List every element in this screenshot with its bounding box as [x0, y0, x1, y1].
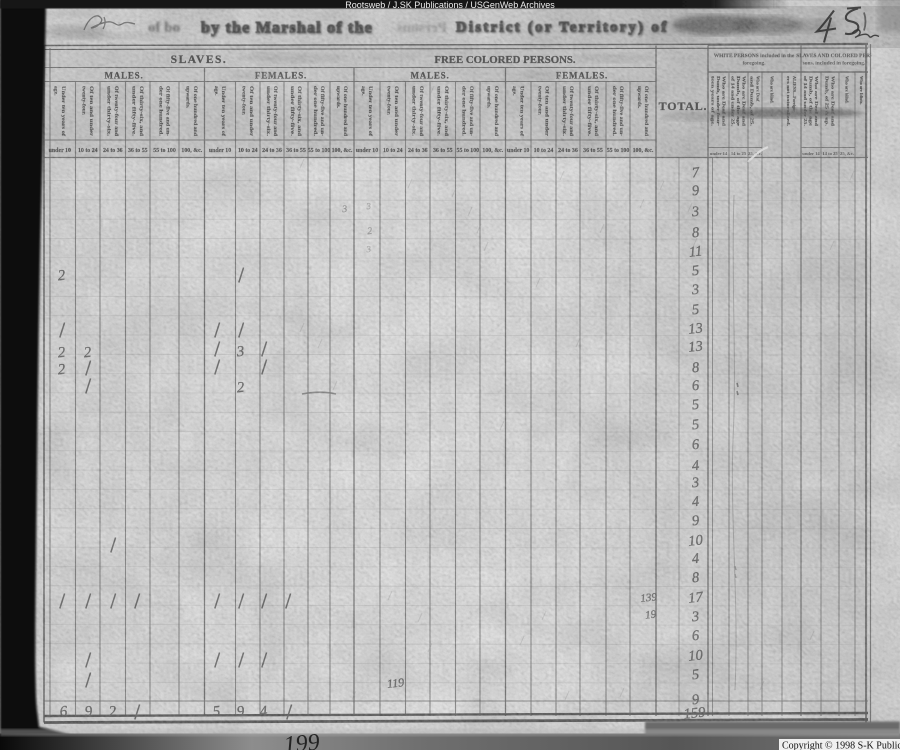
svg-text:Copyright © 1998 S-K Publicati: Copyright © 1998 S-K Publications	[782, 741, 900, 750]
svg-text:199: 199	[283, 729, 321, 750]
svg-text:Rootsweb / J.SK Publications /: Rootsweb / J.SK Publications / USGenWeb …	[345, 0, 555, 10]
